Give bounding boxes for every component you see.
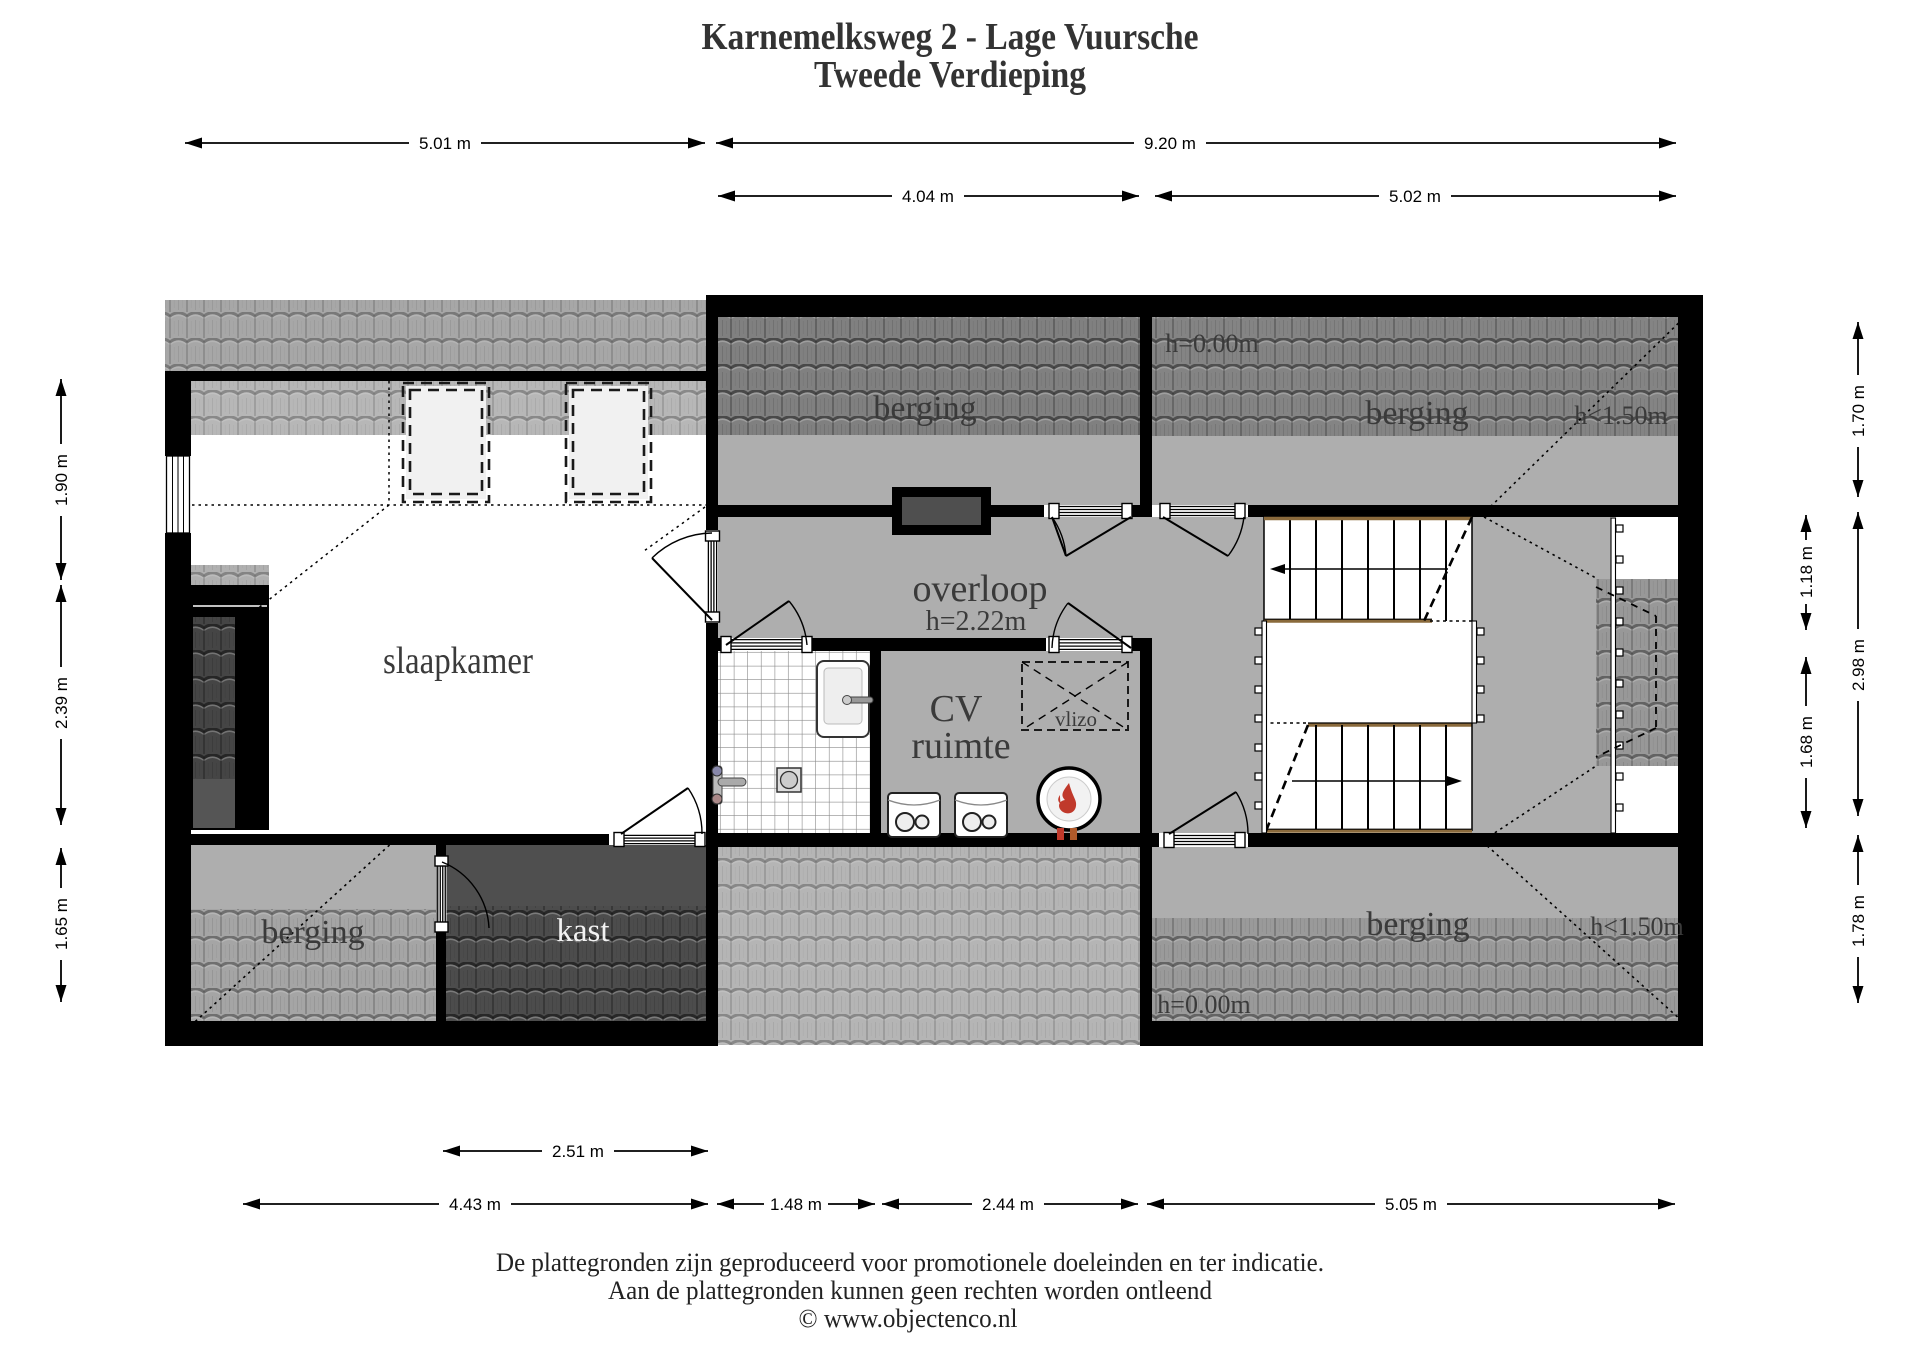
svg-text:2.98 m: 2.98 m <box>1849 639 1868 691</box>
svg-text:4.04 m: 4.04 m <box>902 187 954 206</box>
svg-text:Aan de plattegronden kunnen ge: Aan de plattegronden kunnen geen rechten… <box>608 1276 1212 1305</box>
svg-text:2.51 m: 2.51 m <box>552 1142 604 1161</box>
svg-text:kast: kast <box>556 913 609 949</box>
svg-text:h=0.00m: h=0.00m <box>1165 329 1258 358</box>
svg-text:5.02 m: 5.02 m <box>1389 187 1441 206</box>
svg-text:2.44 m: 2.44 m <box>982 1195 1034 1214</box>
svg-text:h=2.22m: h=2.22m <box>926 606 1027 637</box>
svg-text:1.70 m: 1.70 m <box>1849 385 1868 437</box>
svg-text:5.01 m: 5.01 m <box>419 134 471 153</box>
svg-text:h=0.00m: h=0.00m <box>1157 990 1250 1019</box>
svg-text:2.39 m: 2.39 m <box>52 677 71 729</box>
svg-text:© www.objectenco.nl: © www.objectenco.nl <box>799 1304 1018 1333</box>
svg-text:berging: berging <box>1365 395 1468 432</box>
svg-text:berging: berging <box>261 914 364 951</box>
svg-text:1.65 m: 1.65 m <box>52 898 71 950</box>
svg-text:De plattegronden zijn geproduc: De plattegronden zijn geproduceerd voor … <box>496 1248 1324 1277</box>
svg-text:ruimte: ruimte <box>911 725 1010 767</box>
svg-text:overloop: overloop <box>912 568 1047 610</box>
svg-text:5.05 m: 5.05 m <box>1385 1195 1437 1214</box>
svg-text:vlizo: vlizo <box>1055 707 1097 731</box>
svg-text:CV: CV <box>930 688 983 730</box>
svg-text:h<1.50m: h<1.50m <box>1590 912 1683 941</box>
svg-text:4.43 m: 4.43 m <box>449 1195 501 1214</box>
svg-text:slaapkamer: slaapkamer <box>383 640 533 682</box>
svg-text:9.20 m: 9.20 m <box>1144 134 1196 153</box>
svg-text:1.78 m: 1.78 m <box>1849 895 1868 947</box>
svg-text:1.18 m: 1.18 m <box>1797 546 1816 598</box>
svg-text:1.90 m: 1.90 m <box>52 454 71 506</box>
svg-text:Karnemelksweg 2 - Lage Vuursch: Karnemelksweg 2 - Lage Vuursche <box>702 16 1199 58</box>
svg-text:berging: berging <box>1366 906 1469 943</box>
svg-text:berging: berging <box>873 390 976 427</box>
svg-text:1.68 m: 1.68 m <box>1797 716 1816 768</box>
svg-text:Tweede Verdieping: Tweede Verdieping <box>814 54 1086 96</box>
svg-text:h<1.50m: h<1.50m <box>1574 401 1667 430</box>
svg-text:1.48 m: 1.48 m <box>770 1195 822 1214</box>
